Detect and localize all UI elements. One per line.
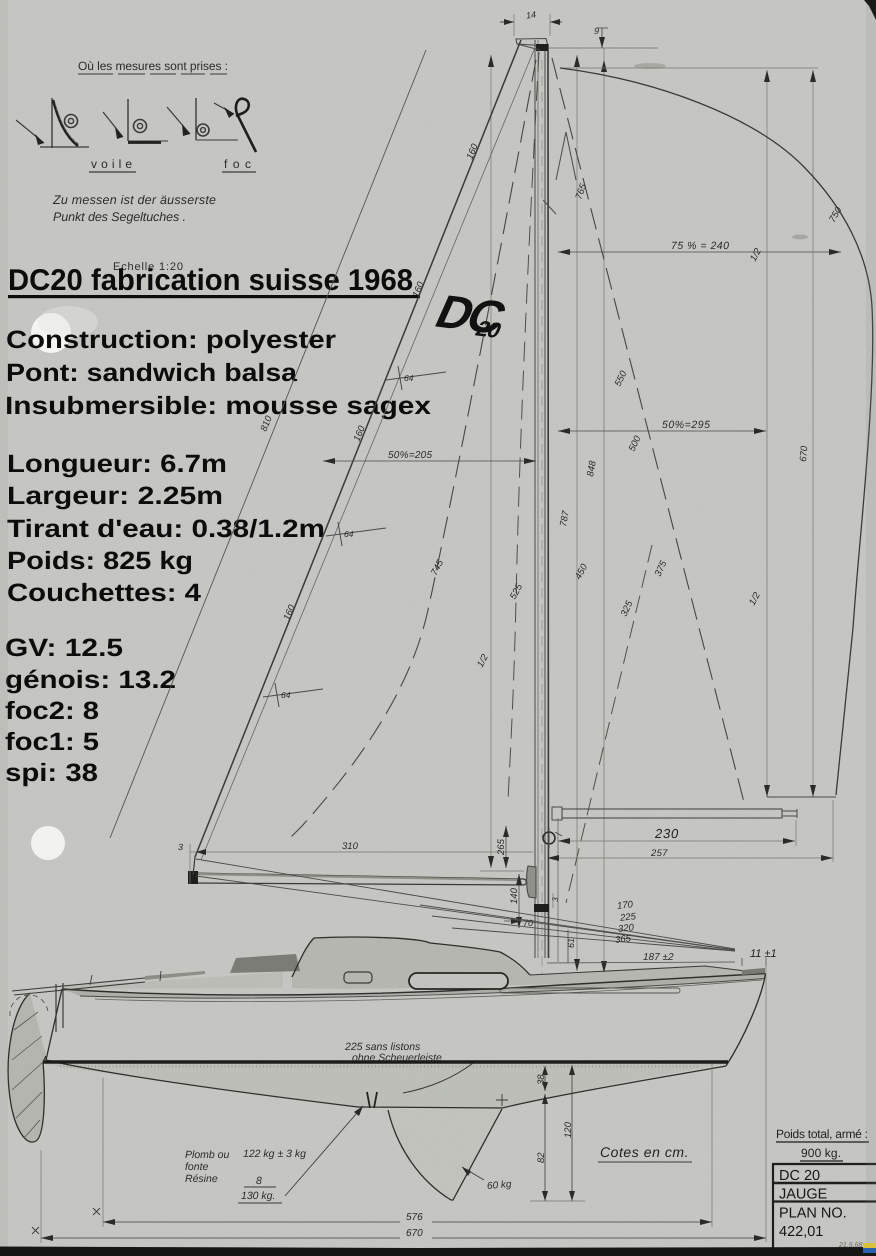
svg-text:120: 120	[563, 1121, 574, 1138]
svg-text:265: 265	[496, 838, 507, 856]
svg-text:82: 82	[536, 1152, 547, 1163]
svg-text:DC 20: DC 20	[779, 1168, 820, 1184]
svg-text:Insubmersible: mousse sagex: Insubmersible: mousse sagex	[5, 392, 431, 420]
svg-text:230: 230	[654, 826, 679, 841]
svg-text:576: 576	[406, 1212, 423, 1223]
svg-text:Tirant d'eau: 0.38/1.2m: Tirant d'eau: 0.38/1.2m	[7, 515, 325, 543]
svg-text:foc2: 8: foc2: 8	[5, 697, 99, 725]
svg-text:Où les mesures sont prises :: Où les mesures sont prises :	[78, 59, 228, 73]
svg-text:187 ±2: 187 ±2	[643, 952, 674, 963]
svg-text:670: 670	[798, 445, 810, 462]
svg-text:38: 38	[536, 1074, 547, 1085]
svg-text:75 % = 240: 75 % = 240	[671, 240, 729, 252]
svg-text:ohne Scheuerleiste: ohne Scheuerleiste	[352, 1052, 442, 1064]
svg-text:257: 257	[650, 848, 668, 859]
svg-text:422,01: 422,01	[779, 1224, 823, 1240]
svg-text:9: 9	[594, 26, 599, 36]
svg-text:64: 64	[344, 529, 354, 539]
svg-text:50%=295: 50%=295	[662, 419, 710, 431]
svg-text:170: 170	[617, 899, 635, 912]
svg-text:60 kg: 60 kg	[487, 1179, 513, 1192]
svg-text:Zu messen ist der äusserste: Zu messen ist der äusserste	[52, 193, 216, 207]
svg-text:JAUGE: JAUGE	[779, 1187, 828, 1203]
svg-text:61: 61	[566, 938, 576, 948]
svg-text:foc1: 5: foc1: 5	[5, 728, 99, 756]
svg-text:64: 64	[281, 690, 291, 700]
svg-text:Cotes en cm.: Cotes en cm.	[600, 1144, 690, 1160]
svg-text:130 kg.: 130 kg.	[241, 1190, 275, 1202]
svg-text:Poids total, armé :: Poids total, armé :	[776, 1127, 868, 1141]
svg-text:365: 365	[615, 933, 633, 946]
svg-text:Longueur: 6.7m: Longueur: 6.7m	[7, 450, 227, 478]
svg-text:Construction: polyester: Construction: polyester	[6, 326, 336, 354]
svg-text:310: 310	[342, 841, 359, 852]
svg-text:Poids: 825 kg: Poids: 825 kg	[7, 547, 193, 575]
svg-text:Punkt des Segeltuches .: Punkt des Segeltuches .	[53, 210, 186, 224]
svg-text:670: 670	[406, 1228, 423, 1239]
svg-text:14: 14	[525, 9, 536, 20]
svg-text:Résine: Résine	[185, 1173, 218, 1185]
svg-text:Pont: sandwich balsa: Pont: sandwich balsa	[6, 359, 298, 387]
svg-text:spi: 38: spi: 38	[5, 759, 98, 787]
svg-text:Largeur: 2.25m: Largeur: 2.25m	[7, 482, 223, 510]
svg-text:11 ±1: 11 ±1	[750, 948, 777, 960]
svg-text:génois: 13.2: génois: 13.2	[5, 666, 176, 694]
svg-text:Couchettes: 4: Couchettes: 4	[7, 579, 201, 607]
svg-text:8: 8	[256, 1175, 262, 1187]
svg-text:50%=205: 50%=205	[388, 450, 432, 461]
svg-text:DC20 fabrication suisse 1968: DC20 fabrication suisse 1968	[8, 264, 413, 297]
svg-text:GV: 12.5: GV: 12.5	[5, 634, 123, 662]
svg-text:fonte: fonte	[185, 1161, 209, 1173]
svg-text:foc: foc	[224, 157, 254, 171]
svg-text:PLAN NO.: PLAN NO.	[779, 1206, 847, 1222]
svg-text:900 kg.: 900 kg.	[801, 1146, 841, 1160]
svg-text:3: 3	[550, 897, 560, 902]
svg-text:64: 64	[404, 373, 414, 383]
svg-text:3: 3	[178, 842, 183, 852]
svg-text:Plomb ou: Plomb ou	[185, 1149, 230, 1161]
svg-text:voile: voile	[91, 157, 135, 171]
svg-text:140: 140	[509, 887, 520, 904]
svg-text:122 kg ± 3 kg: 122 kg ± 3 kg	[243, 1148, 306, 1160]
